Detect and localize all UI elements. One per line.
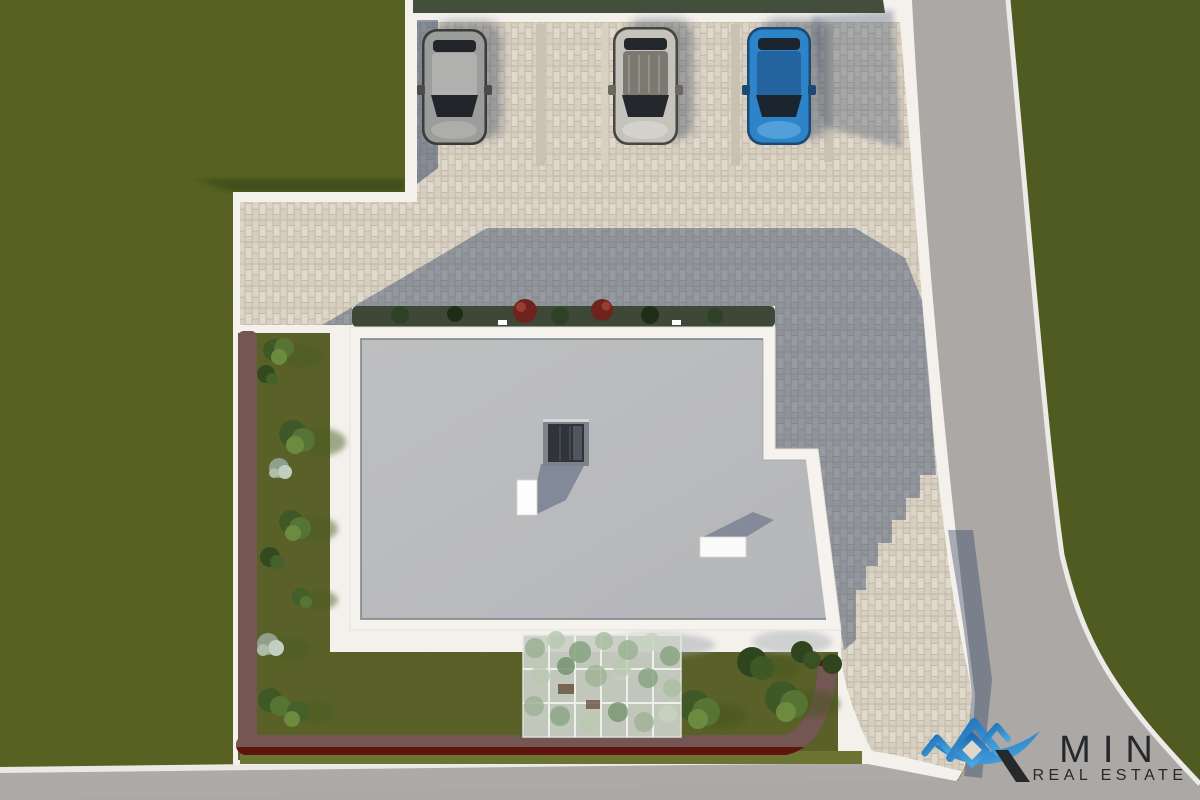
maroon-hedge-left xyxy=(238,331,257,743)
rear-window xyxy=(433,40,476,52)
pergola-furniture xyxy=(586,700,600,709)
parking-divider-faint xyxy=(601,26,608,164)
side-mirror xyxy=(484,85,492,95)
windshield xyxy=(756,95,802,117)
windshield xyxy=(431,95,478,117)
car-silver xyxy=(417,21,502,145)
parking-cars xyxy=(417,19,827,145)
logo-brand-text: MIN xyxy=(1059,729,1165,771)
skylight xyxy=(543,419,589,466)
pergola-furniture xyxy=(558,684,574,694)
path-marker xyxy=(498,320,507,325)
parking-divider xyxy=(731,24,740,166)
hedge-top xyxy=(413,0,885,13)
building xyxy=(350,327,841,630)
chimney xyxy=(517,480,537,515)
parking-divider xyxy=(536,24,545,166)
rear-window xyxy=(624,38,667,50)
side-mirror xyxy=(808,85,816,95)
rear-window xyxy=(758,38,800,50)
side-mirror xyxy=(608,85,616,95)
side-mirror xyxy=(675,85,683,95)
car-white xyxy=(608,19,693,145)
side-mirror xyxy=(417,85,425,95)
pergola xyxy=(523,631,681,737)
roof-vent xyxy=(700,537,746,557)
logo-subtitle-text: REAL ESTATE xyxy=(1032,767,1187,784)
aerial-render: MIN REAL ESTATE xyxy=(0,0,1200,800)
windshield xyxy=(622,95,669,117)
side-mirror xyxy=(742,85,750,95)
path-marker xyxy=(672,320,681,325)
car-blue xyxy=(742,19,827,145)
